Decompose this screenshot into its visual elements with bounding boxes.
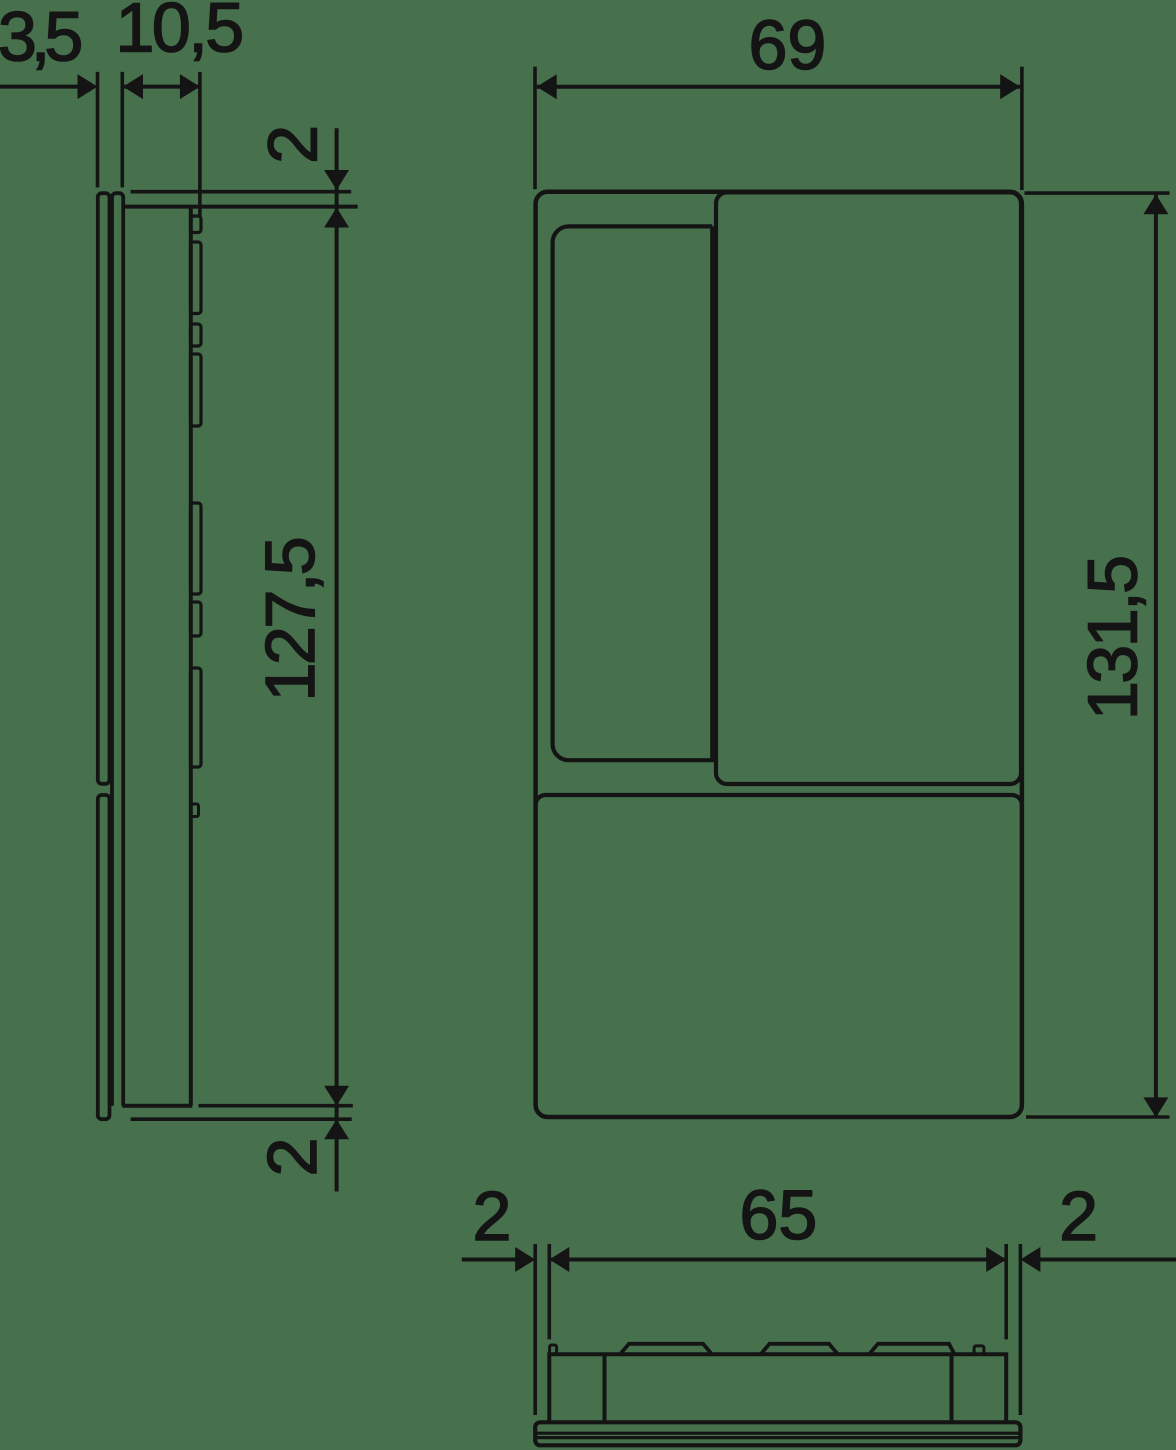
svg-text:127,5: 127,5 — [251, 539, 329, 702]
svg-text:2: 2 — [253, 1140, 331, 1176]
svg-text:2: 2 — [1059, 1177, 1095, 1255]
svg-text:69: 69 — [748, 6, 826, 84]
svg-text:2: 2 — [472, 1177, 508, 1255]
svg-text:2: 2 — [253, 127, 331, 163]
svg-text:10,5: 10,5 — [116, 0, 242, 67]
svg-text:3,5: 3,5 — [0, 0, 80, 75]
svg-text:65: 65 — [739, 1176, 817, 1254]
svg-text:131,5: 131,5 — [1074, 557, 1152, 720]
